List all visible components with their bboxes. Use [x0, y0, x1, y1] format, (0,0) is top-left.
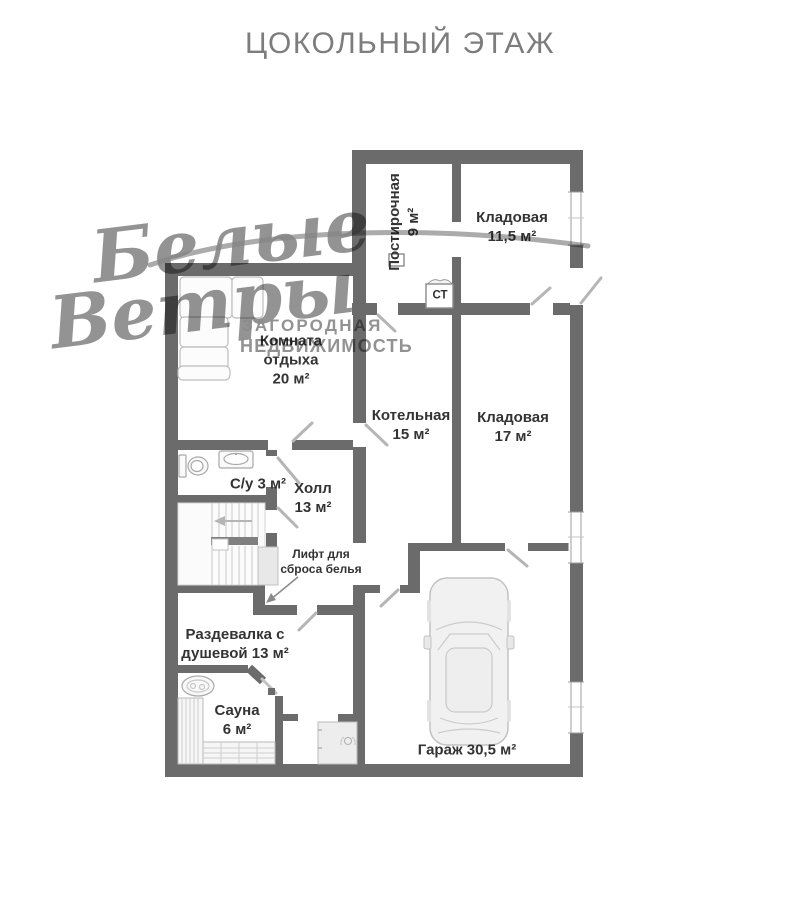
- label-lounge-name1: Комната: [260, 332, 322, 351]
- door-dressing-icon: [299, 613, 316, 630]
- label-dressing: Раздевалка с душевой 13 м²: [181, 625, 288, 663]
- label-hall: Холл 13 м²: [294, 479, 332, 517]
- label-garage: Гараж 30,5 м²: [418, 741, 516, 760]
- door-lounge-icon: [293, 423, 312, 441]
- label-boiler-area: 15 м²: [372, 425, 451, 444]
- staircase: [178, 503, 265, 585]
- label-sauna-name: Сауна: [214, 701, 259, 720]
- window-middle-right-icon: [568, 512, 585, 563]
- label-pantry-upper-name: Кладовая: [476, 208, 548, 227]
- label-boiler: Котельная 15 м²: [372, 406, 451, 444]
- floorplan-drawing: [0, 0, 800, 900]
- label-lounge: Комната отдыха 20 м²: [260, 332, 322, 389]
- label-laundry-chute: Лифт для сброса белья: [280, 547, 361, 577]
- label-laundry-room: Постирочная 9 м²: [385, 173, 423, 270]
- sofa: [178, 277, 263, 380]
- label-washer: СТ: [432, 290, 447, 303]
- door-pantry-garage-icon: [508, 550, 527, 566]
- label-boiler-name: Котельная: [372, 406, 451, 425]
- door-garage-passage-icon: [381, 590, 398, 606]
- label-bathroom: С/у 3 м²: [230, 475, 286, 494]
- label-laundry-area: 9 м²: [404, 173, 423, 270]
- door-sauna-icon: [262, 679, 276, 695]
- label-pantry-middle: Кладовая 17 м²: [477, 408, 549, 446]
- toilet-icon: [179, 455, 208, 477]
- sink-icon: [219, 451, 253, 468]
- floorplan-page: ЦОКОЛЬНЫЙ ЭТАЖ: [0, 0, 800, 900]
- label-dressing-line1: Раздевалка с: [181, 625, 288, 644]
- shower-stall-icon: [318, 722, 357, 764]
- door-exterior-icon: [581, 278, 601, 303]
- label-hall-area: 13 м²: [294, 498, 332, 517]
- label-dressing-line2: душевой 13 м²: [181, 644, 288, 663]
- label-sauna-area: 6 м²: [214, 720, 259, 739]
- label-pantry-upper: Кладовая 11,5 м²: [476, 208, 548, 246]
- label-laundry-name: Постирочная: [385, 173, 404, 270]
- label-chute-line1: Лифт для: [280, 547, 361, 562]
- window-garage-right-icon: [568, 682, 585, 733]
- label-lounge-area: 20 м²: [260, 370, 322, 389]
- door-pantry-pantry-icon: [532, 288, 550, 304]
- label-chute-line2: сброса белья: [280, 562, 361, 577]
- label-pantry-middle-name: Кладовая: [477, 408, 549, 427]
- label-pantry-middle-area: 17 м²: [477, 427, 549, 446]
- sauna-tub-icon: [182, 676, 214, 696]
- page-title: ЦОКОЛЬНЫЙ ЭТАЖ: [245, 27, 555, 61]
- window-upper-right-icon: [568, 192, 585, 245]
- label-sauna: Сауна 6 м²: [214, 701, 259, 739]
- car: [424, 578, 514, 745]
- label-pantry-upper-area: 11,5 м²: [476, 227, 548, 246]
- door-laundry-boiler-icon: [378, 315, 395, 331]
- label-lounge-name2: отдыха: [260, 351, 322, 370]
- label-hall-name: Холл: [294, 479, 332, 498]
